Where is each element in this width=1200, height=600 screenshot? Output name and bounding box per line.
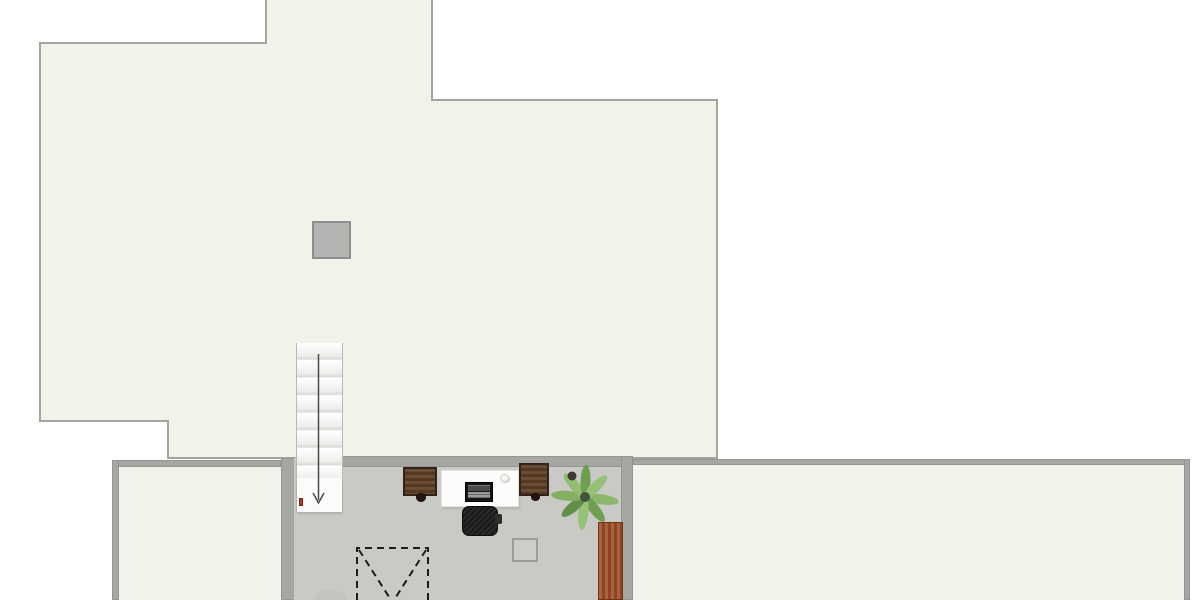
square-stool[interactable] (512, 538, 538, 562)
room-bottom-left-left-wall (112, 460, 119, 600)
room-bottom-right-top-wall (633, 459, 1190, 465)
roof-deck[interactable] (40, 0, 717, 458)
laptop-keyboard (468, 492, 490, 498)
laptop[interactable] (465, 482, 493, 502)
office-chair[interactable] (462, 506, 498, 536)
mouse[interactable] (500, 474, 509, 482)
stair-treads (297, 343, 342, 478)
stair-landing (297, 478, 342, 512)
cabinet-right[interactable] (519, 463, 549, 496)
room-bottom-left-top-wall (112, 460, 281, 467)
room-bottom-right-right-wall (1184, 459, 1190, 600)
cabinet-left-knob (416, 493, 426, 502)
floor-plan-canvas (0, 0, 1200, 600)
chimney[interactable] (312, 221, 351, 259)
door-marker[interactable] (299, 498, 303, 506)
cabinet-left[interactable] (403, 467, 437, 496)
sideboard[interactable] (598, 522, 623, 600)
center-left-wall (281, 458, 295, 600)
room-bottom-right[interactable] (633, 464, 1184, 600)
office-chair-armrest (495, 514, 502, 524)
staircase[interactable] (296, 343, 343, 512)
room-bottom-left[interactable] (119, 465, 281, 600)
room-center-top-wall (341, 456, 633, 467)
cabinet-right-knob (531, 493, 540, 501)
laptop-screen (468, 485, 490, 491)
